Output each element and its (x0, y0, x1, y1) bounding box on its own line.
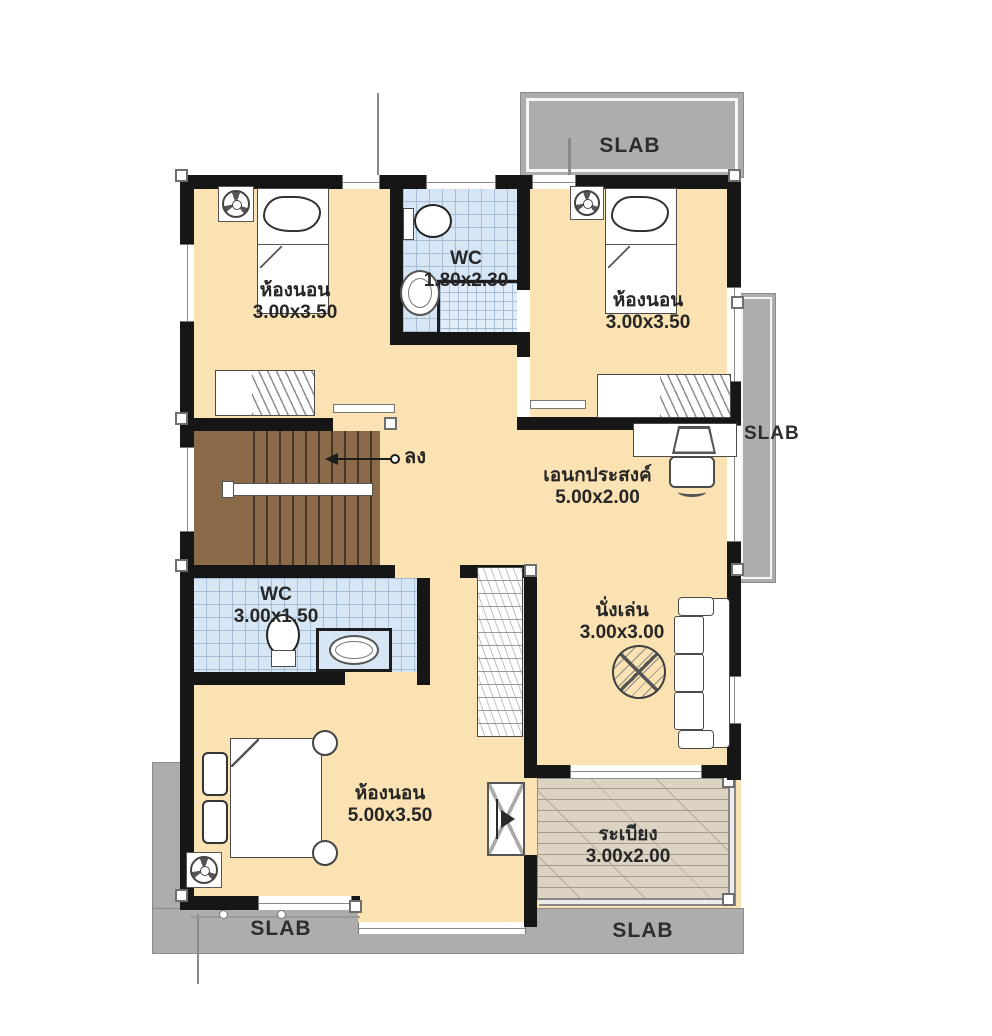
column-marker (175, 412, 188, 425)
balcony-name: ระเบียง (558, 824, 698, 846)
stairs-down-label: ลง (404, 446, 426, 468)
window-left-bedroom1 (180, 244, 194, 322)
toilet-tank (403, 208, 414, 240)
slab-right-label: SLAB (744, 423, 824, 445)
railing-post (722, 893, 735, 906)
multipurpose-name: เอนกประสงค์ (515, 465, 680, 487)
column-marker (728, 169, 741, 182)
column-marker (349, 900, 362, 913)
stair-handrail-cap (222, 481, 234, 498)
roof-drain-line (377, 93, 379, 175)
living-size: 3.00x3.00 (552, 622, 692, 644)
vanity-counter (316, 628, 392, 672)
toilet-tank (271, 650, 296, 667)
pillow (202, 752, 228, 796)
basin-icon (329, 635, 379, 665)
bedroom1-size: 3.00x3.50 (225, 302, 365, 324)
toilet-icon (414, 204, 452, 238)
wc-top-name: WC (396, 248, 536, 270)
column-marker (175, 169, 188, 182)
bay-window (358, 922, 526, 934)
aircon-icon (186, 852, 222, 888)
sliding-door-bedroom1 (333, 404, 395, 413)
column-marker (175, 889, 188, 902)
bed-post (312, 730, 338, 756)
sheet-line (258, 244, 328, 245)
basin-inner (335, 641, 373, 659)
aircon-icon (570, 186, 604, 220)
wc-top-label: WC 1.80x2.30 (396, 248, 536, 292)
aircon-icon (218, 186, 254, 222)
wc-middle-label: WC 3.00x1.50 (206, 584, 346, 628)
balcony-label: ระเบียง 3.00x2.00 (558, 824, 698, 868)
master-bedroom-size: 5.00x3.50 (320, 805, 460, 827)
window-bottom-master (258, 896, 352, 910)
stair-arrow-line (337, 458, 392, 460)
wall-stairs-bottom (180, 565, 395, 578)
living-label: นั่งเล่น 3.00x3.00 (552, 600, 692, 644)
window-top-bedroom1 (342, 175, 380, 189)
wall-bedroom2-left (517, 332, 530, 357)
chair-back (672, 426, 716, 454)
master-bedroom-label: ห้องนอน 5.00x3.50 (320, 783, 460, 827)
sofa-backrest (702, 598, 730, 748)
sheet-fold (260, 246, 282, 268)
bedroom2-label: ห้องนอน 3.00x3.50 (578, 290, 718, 334)
window-top-wc (426, 175, 496, 189)
downpipe-line (197, 914, 199, 984)
sofa-cushion (674, 654, 704, 692)
bed-post (312, 840, 338, 866)
pillow (611, 196, 669, 232)
sheet-fold (231, 739, 259, 767)
wardrobe (477, 567, 523, 737)
pillow (202, 800, 228, 844)
bedroom2-name: ห้องนอน (578, 290, 718, 312)
slab-bottom-left-label: SLAB (211, 917, 351, 941)
column-marker (731, 563, 744, 576)
pillow (263, 196, 321, 232)
balcony-railing-right (728, 780, 736, 906)
ceiling-fan-icon (612, 645, 666, 699)
window-left-stairs (180, 447, 194, 532)
slab-bottom-right-label: SLAB (573, 919, 713, 943)
bookshelf-hatch (660, 375, 730, 417)
stair-handrail (228, 483, 373, 496)
door-gap-bedroom2 (517, 357, 530, 417)
sofa-cushion (674, 692, 704, 730)
wc-middle-name: WC (206, 584, 346, 606)
bedroom1-name: ห้องนอน (225, 280, 365, 302)
wall-wc-middle-right (417, 578, 430, 685)
chair-base (678, 487, 706, 497)
wall-living-bottom-left (524, 765, 570, 778)
balcony-size: 3.00x2.00 (558, 846, 698, 868)
stair-treads (253, 431, 380, 565)
master-bedroom-name: ห้องนอน (320, 783, 460, 805)
staircase (193, 431, 380, 565)
multipurpose-size: 5.00x2.00 (515, 487, 680, 509)
bookshelf (597, 374, 731, 418)
balcony-railing-bottom (539, 898, 735, 906)
sheet-line (606, 244, 676, 245)
column-marker (731, 296, 744, 309)
wall-wc-top-bottom (390, 332, 530, 345)
column-marker (524, 564, 537, 577)
bedroom2-size: 3.00x3.50 (578, 312, 718, 334)
double-bed (230, 738, 322, 858)
column-marker (384, 417, 397, 430)
door-master-balcony (487, 782, 525, 856)
sofa-armrest (678, 730, 714, 749)
wall-living-bottom-right (700, 765, 741, 778)
wall-wc-middle-bottom (180, 672, 345, 685)
sliding-door-bedroom2 (530, 400, 586, 409)
multipurpose-label: เอนกประสงค์ 5.00x2.00 (515, 465, 680, 509)
floor-plan: ลง ห้องนอน 3.00x3.50 WC 1.80x2.30 ห้องนอ… (0, 0, 992, 1036)
door-gap-wc-top (517, 290, 530, 332)
wall-living-left (524, 565, 537, 778)
wall-bedroom1-bottom (180, 418, 333, 431)
sliding-window-balcony (570, 765, 702, 778)
wc-top-size: 1.80x2.30 (396, 270, 536, 292)
column-marker (175, 559, 188, 572)
closet (215, 370, 315, 416)
slab-top-label: SLAB (560, 134, 700, 158)
stair-arrow-head (325, 453, 338, 465)
stair-arrow-origin (390, 454, 400, 464)
wall-balcony-left (524, 855, 537, 927)
living-name: นั่งเล่น (552, 600, 692, 622)
closet-hatch (252, 371, 314, 415)
bedroom1-label: ห้องนอน 3.00x3.50 (225, 280, 365, 324)
wc-middle-size: 3.00x1.50 (206, 606, 346, 628)
sheet-fold (608, 246, 630, 268)
